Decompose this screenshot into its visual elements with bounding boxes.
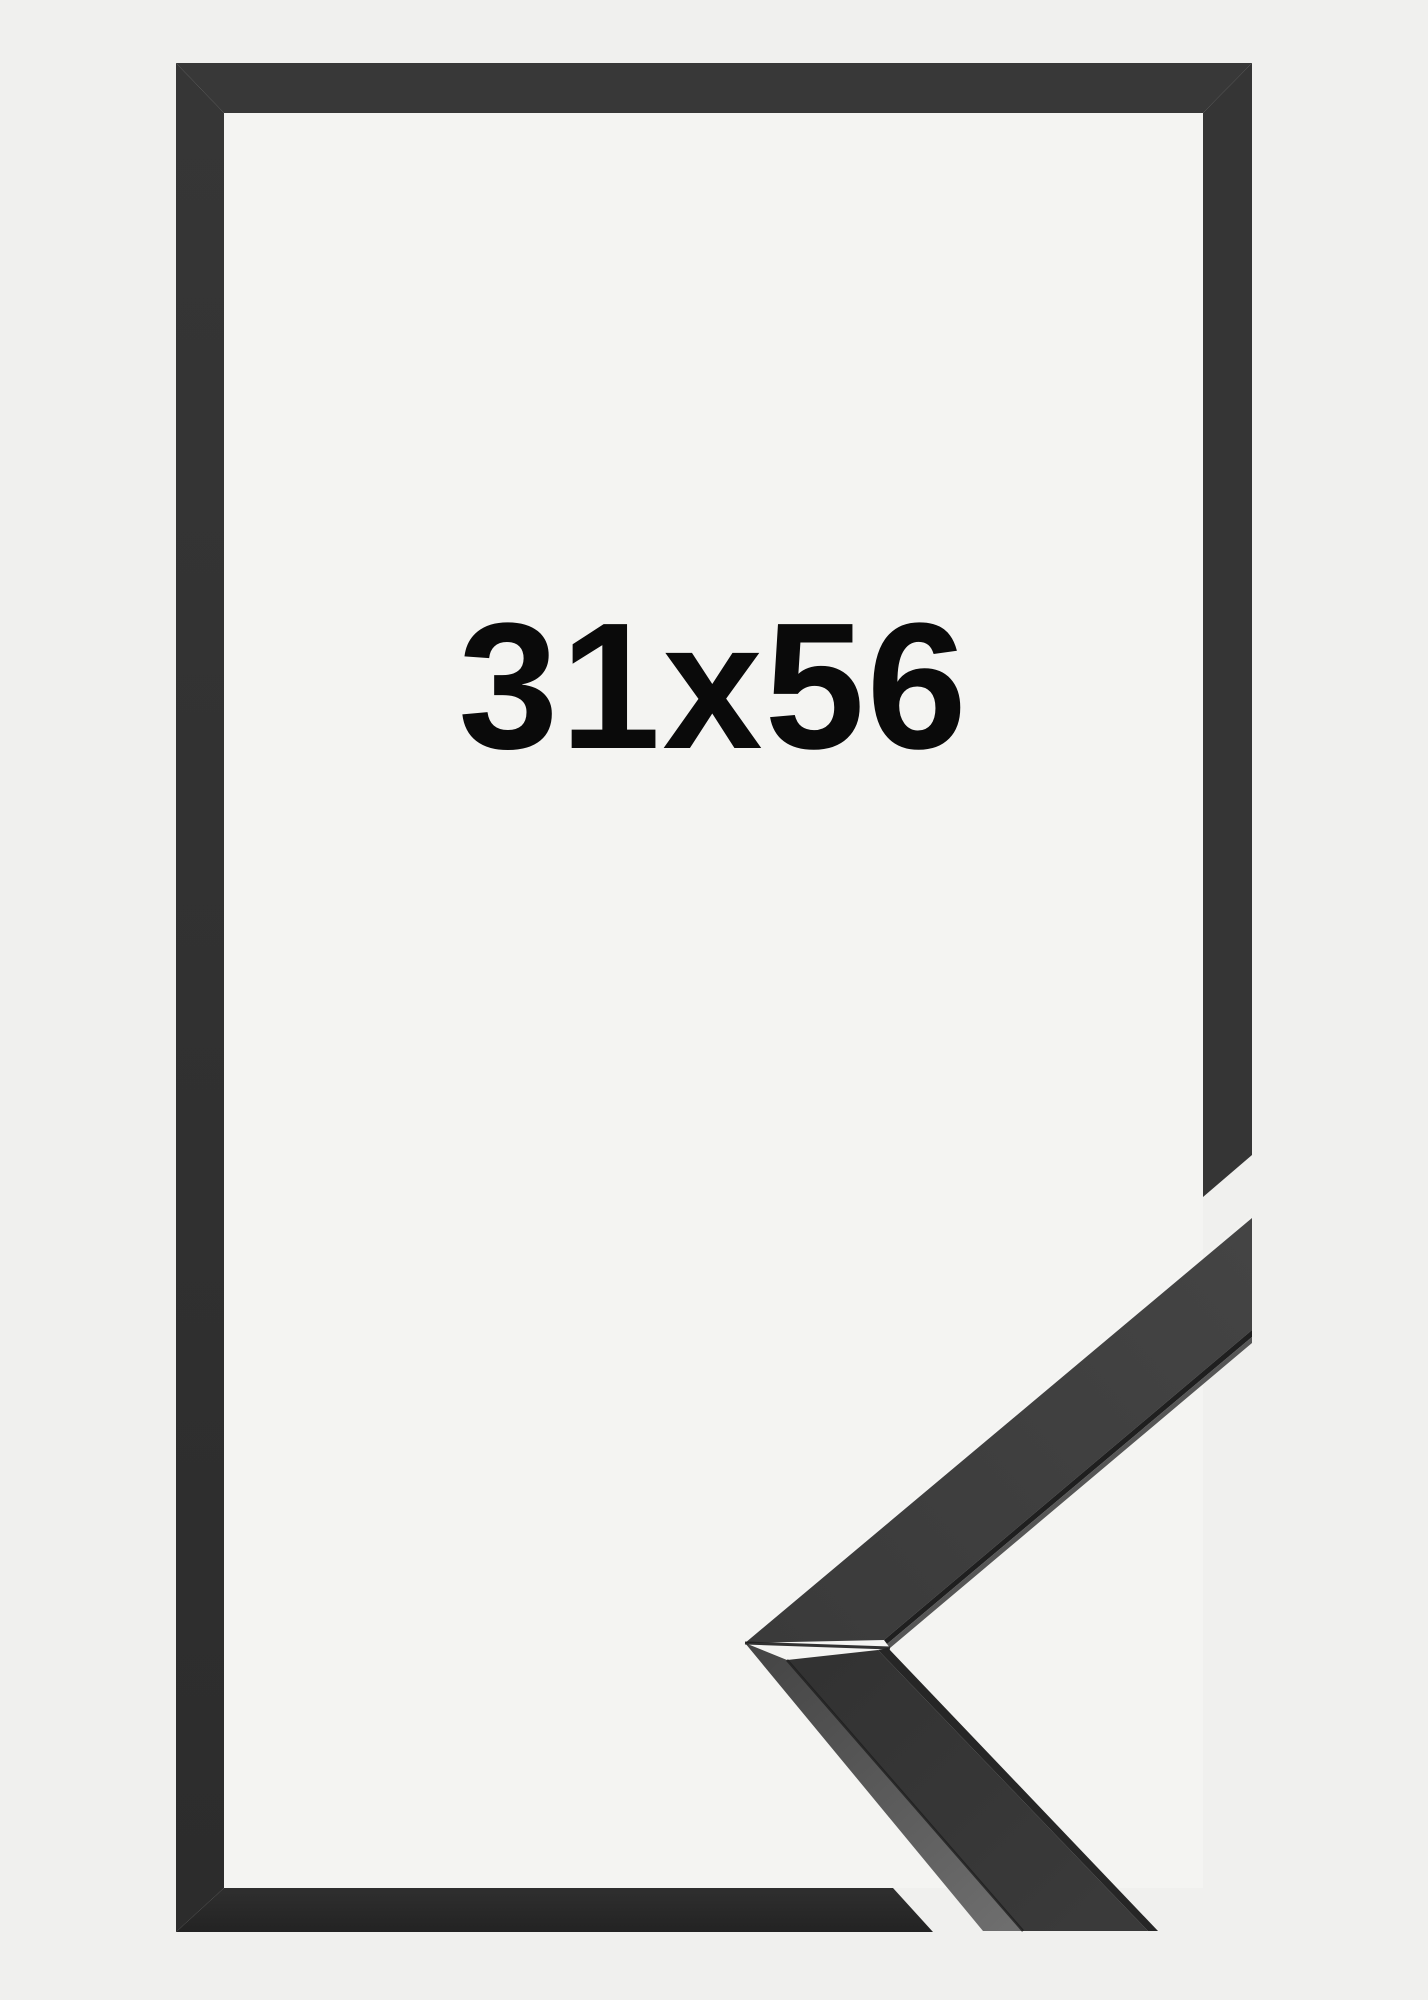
size-label: 31x56 [224,597,1203,777]
frame-bottom-bar [176,1888,933,1932]
frame-scene [0,0,1428,2000]
background-inner-mat [224,113,1203,1888]
product-image: 31x56 [0,0,1428,2000]
frame-left-bar [176,63,224,1932]
frame-right-bar [1203,63,1252,1197]
frame-top-bar [176,63,1252,113]
